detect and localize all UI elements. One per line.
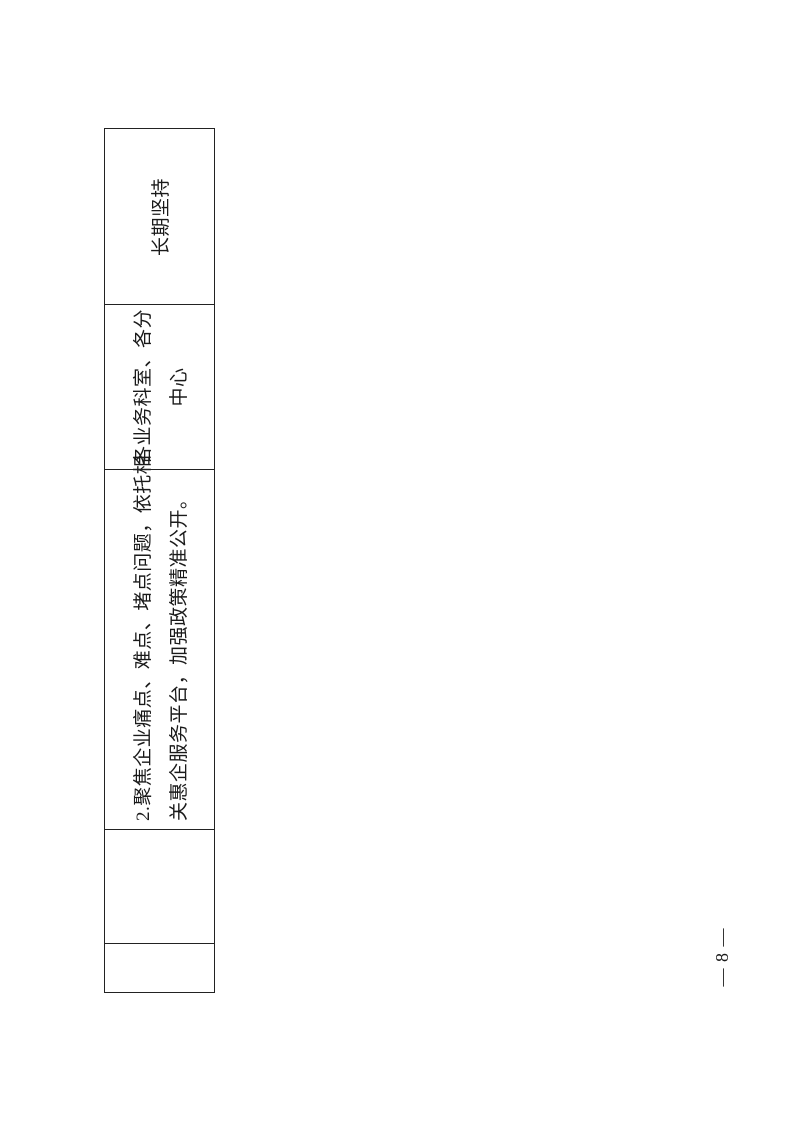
table-cell-empty-2 bbox=[105, 830, 214, 944]
task-text-line-1: 2.聚焦企业痛点、难点、堵点问题，依托相 bbox=[126, 478, 162, 821]
rotated-landscape-content: 2.聚焦企业痛点、难点、堵点问题，依托相 关惠企服务平台，加强政策精准公开。 各… bbox=[0, 0, 793, 1122]
deadline-text-line-1: 长期坚持 bbox=[144, 130, 180, 304]
page-number: — 8 — bbox=[711, 922, 733, 992]
document-page: 2.聚焦企业痛点、难点、堵点问题，依托相 关惠企服务平台，加强政策精准公开。 各… bbox=[0, 0, 793, 1122]
table-cell-deadline: 长期坚持 bbox=[105, 130, 214, 305]
table-cell-task: 2.聚焦企业痛点、难点、堵点问题，依托相 关惠企服务平台，加强政策精准公开。 bbox=[105, 470, 214, 830]
task-table: 2.聚焦企业痛点、难点、堵点问题，依托相 关惠企服务平台，加强政策精准公开。 各… bbox=[104, 128, 215, 993]
department-text-line-2: 中心 bbox=[162, 305, 198, 469]
task-text-line-2: 关惠企服务平台，加强政策精准公开。 bbox=[162, 478, 198, 821]
department-text-line-1: 各业务科室、各分 bbox=[126, 305, 162, 469]
table-cell-empty-1 bbox=[105, 944, 214, 992]
table-cell-department: 各业务科室、各分 中心 bbox=[105, 305, 214, 470]
